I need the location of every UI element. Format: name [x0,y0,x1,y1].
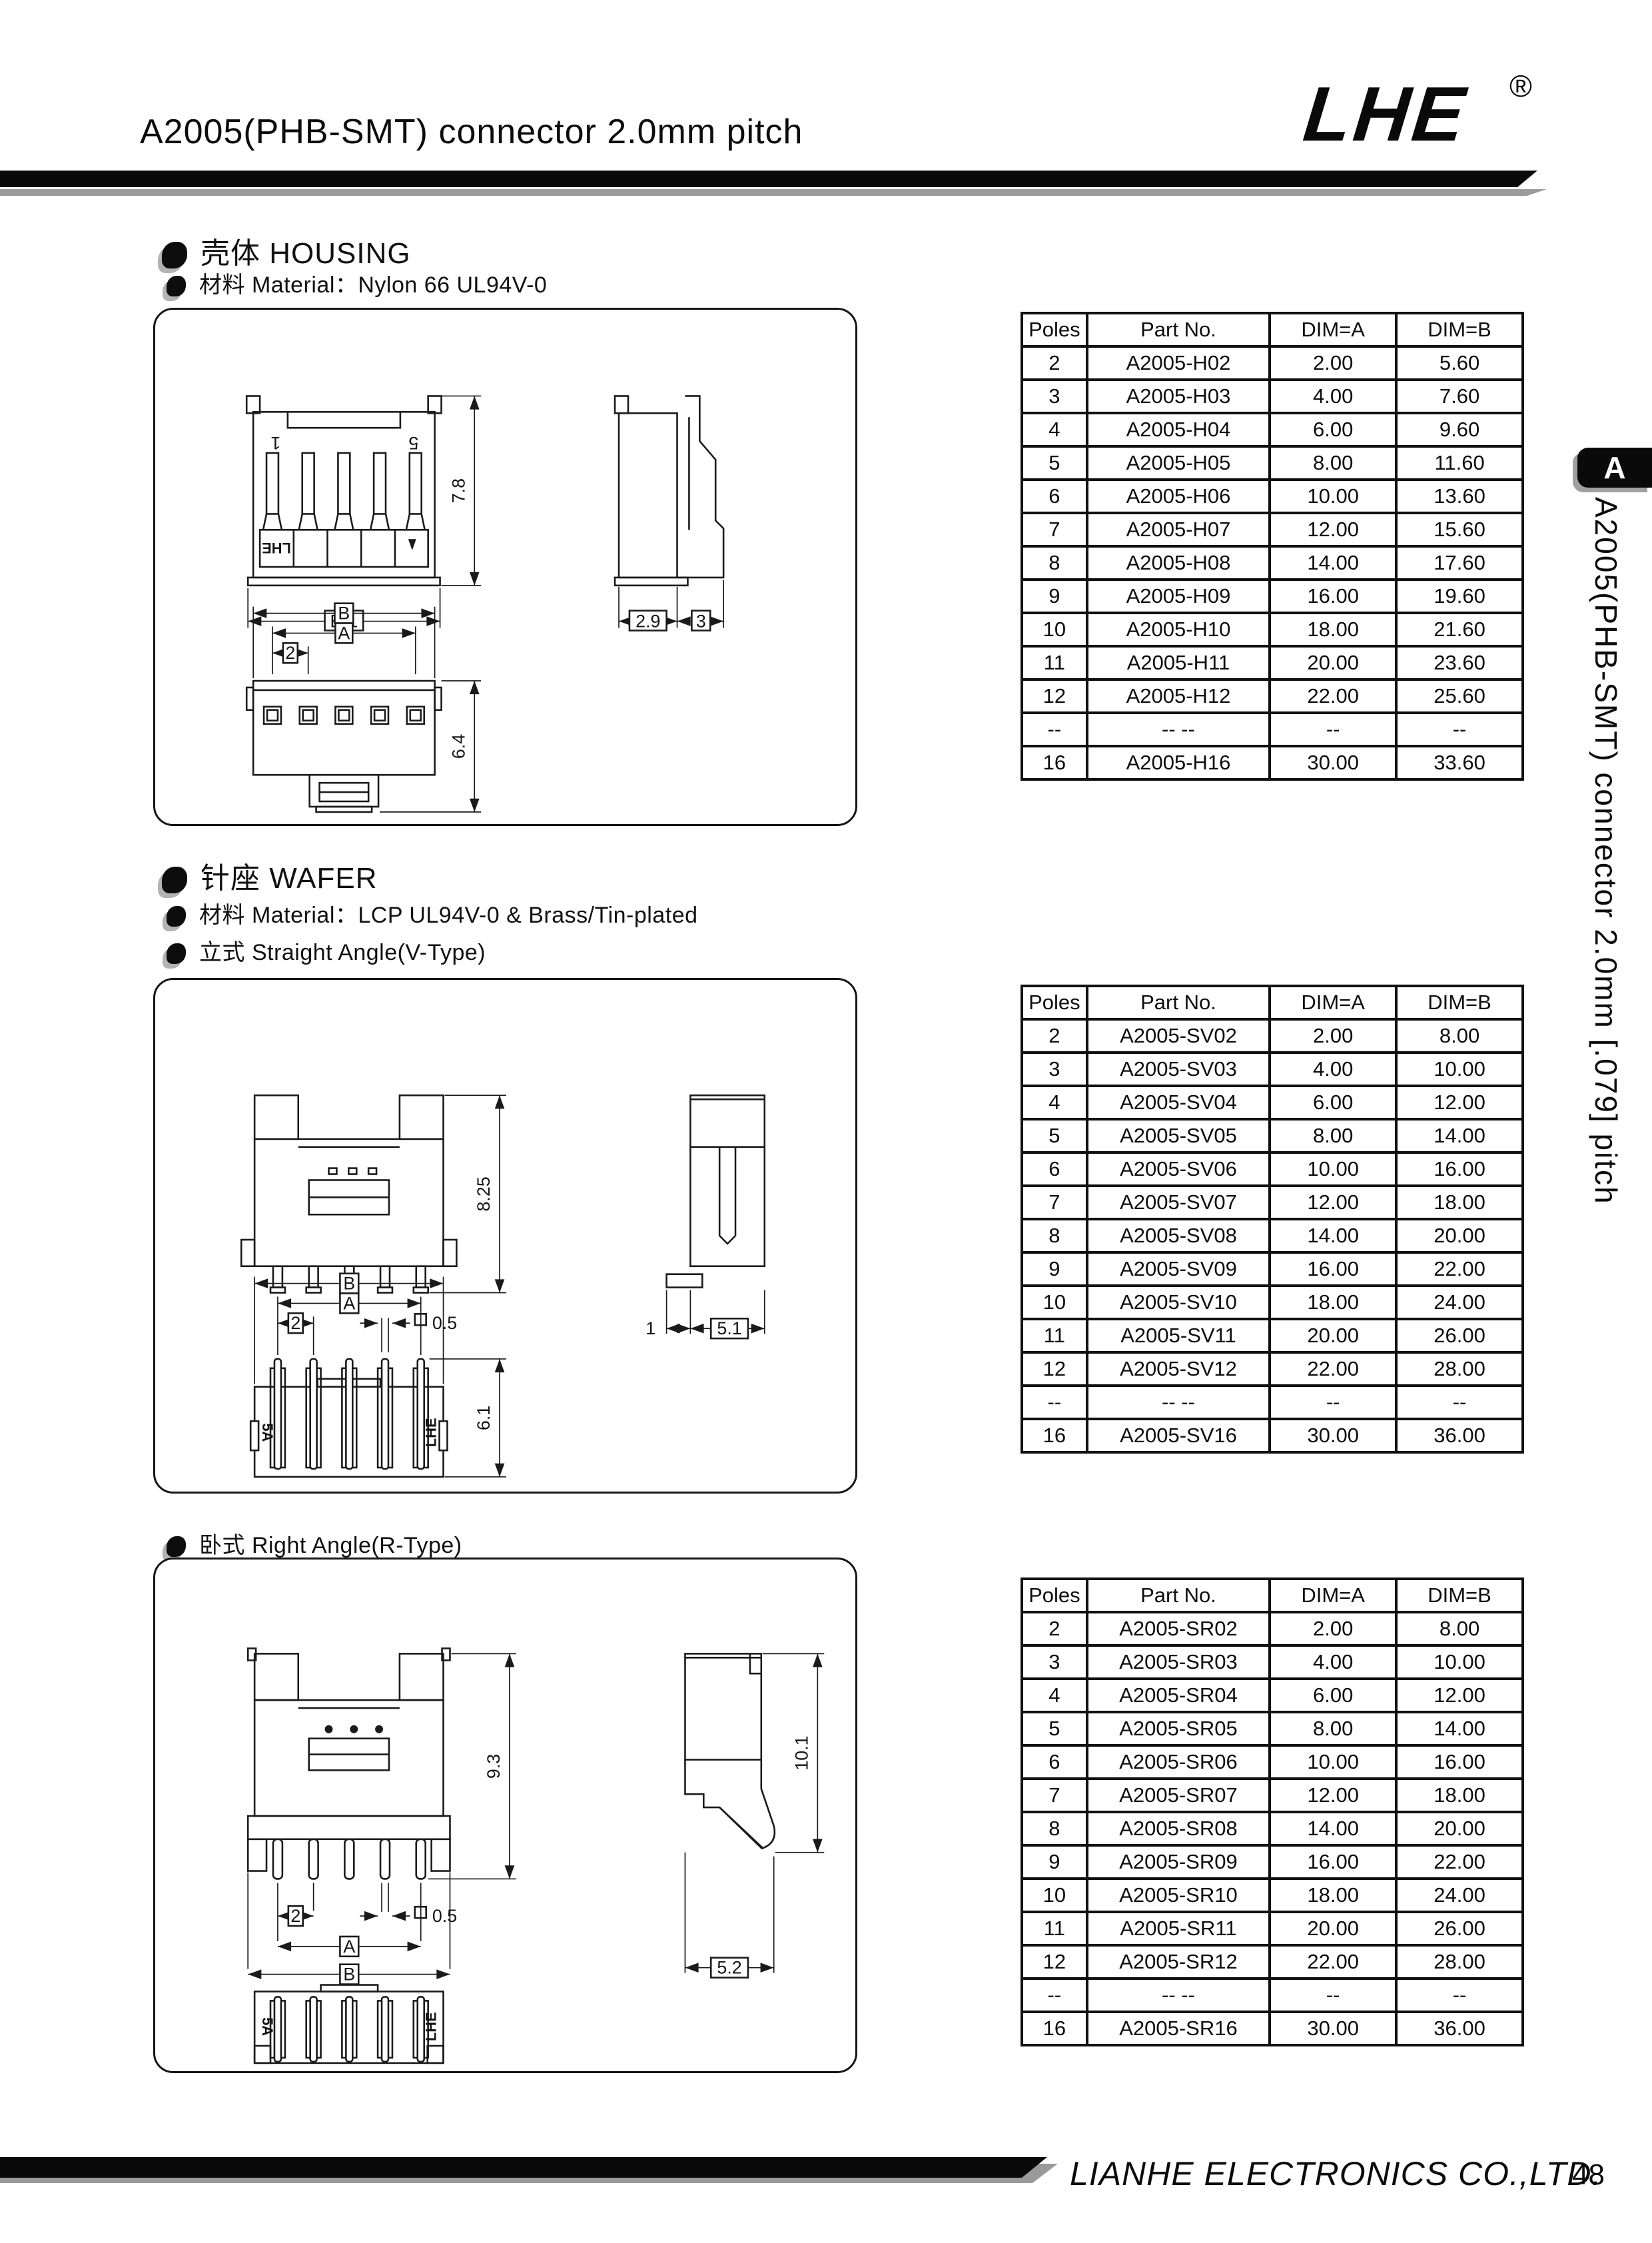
table-cell: -- [1270,713,1396,746]
table-cell: 22.00 [1396,1845,1523,1879]
table-row: 8A2005-H0814.0017.60 [1022,546,1523,580]
column-header: Poles [1022,313,1087,346]
table-cell: 30.00 [1270,2012,1396,2045]
footer-page-number: 48 [1572,2158,1605,2192]
wafer-right-angle-label: 卧式 Right Angle(R-Type) [199,1533,462,1558]
svg-text:LHE: LHE [423,1418,440,1447]
table-cell: 12.00 [1396,1086,1523,1119]
table-cell: 10 [1022,1879,1087,1912]
table-cell: 36.00 [1396,1419,1523,1452]
table-row: 5A2005-H058.0011.60 [1022,446,1523,480]
table-cell: A2005-H04 [1087,413,1270,446]
table-row: 8A2005-SV0814.0020.00 [1022,1219,1523,1252]
table-cell: -- -- [1087,1979,1270,2012]
table-cell: 10.00 [1396,1053,1523,1086]
table-cell: 12 [1022,679,1087,713]
table-cell: A2005-SR05 [1087,1712,1270,1745]
type-bullet-icon [167,943,186,964]
table-cell: 14.00 [1270,546,1396,580]
table-cell: 5 [1022,1119,1087,1152]
table-row: 3A2005-SR034.0010.00 [1022,1645,1523,1679]
table-cell: 33.60 [1396,746,1523,779]
table-cell: A2005-SV06 [1087,1152,1270,1186]
table-cell: 10.00 [1270,1152,1396,1186]
table-cell: A2005-SV04 [1087,1086,1270,1119]
table-cell: 7.60 [1396,380,1523,413]
table-cell: -- [1396,1979,1523,2012]
table-cell: -- [1396,713,1523,746]
table-cell: 2.00 [1270,346,1396,380]
wafer-r-front-view [248,1648,450,1879]
svg-text:B: B [343,1274,355,1294]
table-cell: 6.00 [1270,1086,1396,1119]
table-cell: A2005-H11 [1087,646,1270,679]
column-header: DIM=A [1270,1579,1396,1612]
table-cell: -- [1022,713,1087,746]
table-cell: A2005-SV08 [1087,1219,1270,1252]
table-cell: A2005-SR03 [1087,1645,1270,1679]
table-cell: 8 [1022,1812,1087,1845]
table-cell: 10.00 [1270,480,1396,513]
table-cell: 14.00 [1270,1219,1396,1252]
table-cell: A2005-SR10 [1087,1879,1270,1912]
table-cell: A2005-SV03 [1087,1053,1270,1086]
table-cell: 5 [1022,446,1087,480]
svg-text:B: B [338,604,350,624]
table-row: 5A2005-SR058.0014.00 [1022,1712,1523,1745]
svg-text:2.9: 2.9 [635,611,660,631]
table-cell: 25.60 [1396,679,1523,713]
table-cell: A2005-H05 [1087,446,1270,480]
table-cell: 16.00 [1396,1152,1523,1186]
column-header: Part No. [1087,986,1270,1019]
table-cell: 20.00 [1270,1912,1396,1945]
table-cell: A2005-H03 [1087,380,1270,413]
table-cell: A2005-H16 [1087,746,1270,779]
table-cell: 11.60 [1396,446,1523,480]
svg-text:5A: 5A [259,2017,276,2036]
table-cell: 10.00 [1396,1645,1523,1679]
table-cell: 3 [1022,1645,1087,1679]
table-cell: A2005-SV12 [1087,1352,1270,1386]
table-cell: 22.00 [1270,679,1396,713]
table-row: 11A2005-H1120.0023.60 [1022,646,1523,679]
wafer-v-spec-table: PolesPart No.DIM=ADIM=B2A2005-SV022.008.… [1021,985,1524,1454]
table-cell: 11 [1022,646,1087,679]
svg-text:LHE: LHE [262,540,291,556]
table-cell: A2005-H07 [1087,513,1270,546]
table-cell: 8 [1022,546,1087,580]
table-cell: 28.00 [1396,1945,1523,1979]
table-cell: A2005-SR04 [1087,1679,1270,1712]
table-cell: 9 [1022,1252,1087,1286]
table-row: 3A2005-SV034.0010.00 [1022,1053,1523,1086]
table-cell: A2005-SR08 [1087,1812,1270,1845]
table-cell: 10 [1022,613,1087,646]
table-cell: 6.00 [1270,1679,1396,1712]
column-header: DIM=A [1270,986,1396,1019]
table-cell: -- [1270,1386,1396,1419]
section-bullet-icon [162,242,187,268]
table-cell: 7 [1022,513,1087,546]
svg-text:6.4: 6.4 [448,734,468,759]
svg-text:A: A [343,1937,355,1957]
wafer-v-dimensions: 8.25 1 5.1 B A [254,1095,765,1477]
table-cell: 18.00 [1270,1879,1396,1912]
table-cell: A2005-SV02 [1087,1019,1270,1053]
table-cell: 13.60 [1396,480,1523,513]
table-cell: A2005-SR09 [1087,1845,1270,1879]
table-header-row: PolesPart No.DIM=ADIM=B [1022,986,1523,1019]
table-row: 6A2005-SV0610.0016.00 [1022,1152,1523,1186]
table-cell: 11 [1022,1319,1087,1352]
table-row: 8A2005-SR0814.0020.00 [1022,1812,1523,1845]
table-header-row: PolesPart No.DIM=ADIM=B [1022,313,1523,346]
table-row: 9A2005-SR0916.0022.00 [1022,1845,1523,1879]
section-index-label: A [1603,450,1625,486]
table-cell: 8 [1022,1219,1087,1252]
table-cell: -- [1022,1979,1087,2012]
table-row: 7A2005-H0712.0015.60 [1022,513,1523,546]
wafer-material-line: 材料 Material：LCP UL94V-0 & Brass/Tin-plat… [167,897,698,929]
table-cell: 2 [1022,346,1087,380]
table-cell: 12.00 [1270,513,1396,546]
table-cell: 7 [1022,1779,1087,1812]
table-cell: 4 [1022,413,1087,446]
housing-technical-drawing: 1 5 LHE [155,310,855,824]
wafer-r-drawing-box: 5A LHE 9.3 2 0.5 [153,1558,857,2073]
table-cell: 11 [1022,1912,1087,1945]
table-cell: -- [1396,1386,1523,1419]
table-row: 16A2005-H1630.0033.60 [1022,746,1523,779]
table-row: 9A2005-SV0916.0022.00 [1022,1252,1523,1286]
table-cell: 30.00 [1270,746,1396,779]
table-row: ---- ------ [1022,1386,1523,1419]
table-cell: A2005-SV16 [1087,1419,1270,1452]
table-cell: -- [1022,1386,1087,1419]
table-row: 5A2005-SV058.0014.00 [1022,1119,1523,1152]
table-cell: 24.00 [1396,1879,1523,1912]
table-cell: 6 [1022,1745,1087,1779]
table-cell: A2005-H06 [1087,480,1270,513]
table-cell: 8.00 [1270,1119,1396,1152]
svg-text:7.8: 7.8 [448,478,468,503]
table-cell: 2.00 [1270,1612,1396,1645]
table-cell: -- -- [1087,1386,1270,1419]
table-cell: A2005-H08 [1087,546,1270,580]
wafer-right-angle-line: 卧式 Right Angle(R-Type) [167,1527,462,1560]
table-cell: 12 [1022,1352,1087,1386]
material-bullet-icon [167,276,186,296]
table-cell: 16.00 [1396,1745,1523,1779]
table-cell: 16.00 [1270,580,1396,613]
housing-dimensions: 7.8 B-1 2.9 3 B [248,396,723,811]
table-cell: A2005-SR11 [1087,1912,1270,1945]
table-cell: 12 [1022,1945,1087,1979]
housing-bottom-view [246,681,441,812]
table-cell: 19.60 [1396,580,1523,613]
table-cell: A2005-H12 [1087,679,1270,713]
table-cell: 12.00 [1270,1779,1396,1812]
table-row: 4A2005-SV046.0012.00 [1022,1086,1523,1119]
table-cell: 4.00 [1270,1645,1396,1679]
table-cell: 26.00 [1396,1912,1523,1945]
table-row: ---- ------ [1022,1979,1523,2012]
table-cell: 6.00 [1270,413,1396,446]
table-cell: 18.00 [1396,1186,1523,1219]
column-header: Poles [1022,986,1087,1019]
table-cell: 8.00 [1270,1712,1396,1745]
table-cell: 16 [1022,2012,1087,2045]
wafer-heading-label: 针座 WAFER [201,862,377,895]
table-cell: 36.00 [1396,2012,1523,2045]
table-cell: 14.00 [1396,1119,1523,1152]
table-cell: 20.00 [1270,1319,1396,1352]
svg-text:2: 2 [290,1313,300,1333]
table-cell: 18.00 [1270,613,1396,646]
table-cell: 16 [1022,1419,1087,1452]
table-cell: 6 [1022,480,1087,513]
table-cell: 2 [1022,1612,1087,1645]
table-cell: A2005-SR02 [1087,1612,1270,1645]
table-row: ---- ------ [1022,713,1523,746]
material-bullet-icon [167,906,186,927]
table-cell: 14.00 [1396,1712,1523,1745]
table-row: 2A2005-H022.005.60 [1022,346,1523,380]
header-rule-shadow [0,189,1547,196]
table-cell: A2005-SR16 [1087,2012,1270,2045]
svg-text:5.2: 5.2 [717,1958,741,1978]
housing-heading-label: 壳体 HOUSING [201,237,411,270]
table-cell: 22.00 [1270,1945,1396,1979]
housing-material-label: 材料 Material：Nylon 66 UL94V-0 [199,272,547,298]
housing-side-view [615,396,723,585]
wafer-straight-label: 立式 Straight Angle(V-Type) [199,940,486,965]
table-cell: 6 [1022,1152,1087,1186]
table-row: 7A2005-SR0712.0018.00 [1022,1779,1523,1812]
table-cell: A2005-SV05 [1087,1119,1270,1152]
table-row: 10A2005-SV1018.0024.00 [1022,1286,1523,1319]
wafer-r-dimensions: 9.3 2 0.5 A B [248,1653,824,1984]
svg-text:1: 1 [271,433,281,453]
table-row: 11A2005-SR1120.0026.00 [1022,1912,1523,1945]
table-cell: 16.00 [1270,1845,1396,1879]
table-row: 3A2005-H034.007.60 [1022,380,1523,413]
page-title: A2005(PHB-SMT) connector 2.0mm pitch [140,112,803,152]
table-cell: 18.00 [1396,1779,1523,1812]
header-rule-bar [0,171,1537,187]
wafer-r-spec-table: PolesPart No.DIM=ADIM=B2A2005-SR022.008.… [1021,1577,1524,2046]
svg-text:5A: 5A [259,1423,276,1442]
table-row: 6A2005-H0610.0013.60 [1022,480,1523,513]
svg-text:2: 2 [285,643,295,663]
table-cell: A2005-SV11 [1087,1319,1270,1352]
table-cell: 9 [1022,580,1087,613]
table-cell: A2005-SV09 [1087,1252,1270,1286]
table-row: 9A2005-H0916.0019.60 [1022,580,1523,613]
column-header: Part No. [1087,1579,1270,1612]
wafer-r-technical-drawing: 5A LHE 9.3 2 0.5 [155,1560,855,2071]
table-cell: 5.60 [1396,346,1523,380]
wafer-material-label: 材料 Material：LCP UL94V-0 & Brass/Tin-plat… [199,903,698,928]
column-header: DIM=B [1396,1579,1523,1612]
table-row: 6A2005-SR0610.0016.00 [1022,1745,1523,1779]
table-cell: 8.00 [1396,1612,1523,1645]
svg-text:LHE: LHE [423,2012,440,2041]
table-cell: 2 [1022,1019,1087,1053]
table-cell: 9.60 [1396,413,1523,446]
wafer-section: 针座 WAFER [162,854,377,897]
table-row: 10A2005-H1018.0021.60 [1022,613,1523,646]
table-cell: 4.00 [1270,1053,1396,1086]
table-cell: 9 [1022,1845,1087,1879]
housing-front-view: 1 5 LHE [246,396,441,585]
table-cell: 8.00 [1270,446,1396,480]
housing-section: 壳体 HOUSING [162,229,411,272]
datasheet-page: A2005(PHB-SMT) connector 2.0mm pitch LHE… [0,0,1652,2243]
table-row: 12A2005-SV1222.0028.00 [1022,1352,1523,1386]
wafer-v-drawing-box: 5A LHE 8.25 1 5.1 B [153,978,857,1494]
table-cell: 30.00 [1270,1419,1396,1452]
table-row: 16A2005-SV1630.0036.00 [1022,1419,1523,1452]
section-index-tab: A [1577,448,1652,488]
table-cell: 28.00 [1396,1352,1523,1386]
svg-text:5: 5 [408,433,418,453]
registered-trademark-icon: ® [1509,68,1532,104]
table-cell: 3 [1022,380,1087,413]
table-row: 12A2005-H1222.0025.60 [1022,679,1523,713]
table-cell: A2005-H02 [1087,346,1270,380]
table-cell: 16 [1022,746,1087,779]
column-header: DIM=B [1396,313,1523,346]
wafer-v-front-view [241,1095,456,1292]
housing-spec-table: PolesPart No.DIM=ADIM=B2A2005-H022.005.6… [1021,312,1524,781]
company-logo: LHE [1300,69,1471,159]
table-cell: 12.00 [1396,1679,1523,1712]
table-cell: 18.00 [1270,1286,1396,1319]
svg-text:0.5: 0.5 [432,1313,457,1333]
svg-text:5.1: 5.1 [717,1318,741,1338]
table-cell: 15.60 [1396,513,1523,546]
table-cell: 21.60 [1396,613,1523,646]
svg-text:6.1: 6.1 [474,1406,494,1430]
table-cell: A2005-SR06 [1087,1745,1270,1779]
column-header: Part No. [1087,313,1270,346]
table-cell: 3 [1022,1053,1087,1086]
wafer-r-bottom-view: 5A LHE [254,1985,443,2063]
table-cell: 23.60 [1396,646,1523,679]
table-row: 2A2005-SV022.008.00 [1022,1019,1523,1053]
table-cell: 4 [1022,1679,1087,1712]
table-cell: A2005-SV10 [1087,1286,1270,1319]
table-cell: 22.00 [1396,1252,1523,1286]
wafer-v-side-view [667,1095,765,1287]
svg-text:9.3: 9.3 [484,1754,504,1779]
table-row: 7A2005-SV0712.0018.00 [1022,1186,1523,1219]
table-row: 4A2005-SR046.0012.00 [1022,1679,1523,1712]
table-row: 11A2005-SV1120.0026.00 [1022,1319,1523,1352]
table-cell: 10 [1022,1286,1087,1319]
svg-text:10.1: 10.1 [791,1735,811,1770]
column-header: DIM=A [1270,313,1396,346]
svg-text:B: B [343,1965,355,1985]
table-cell: 20.00 [1270,646,1396,679]
table-cell: 4.00 [1270,380,1396,413]
table-cell: 5 [1022,1712,1087,1745]
section-bullet-icon [162,867,187,893]
table-header-row: PolesPart No.DIM=ADIM=B [1022,1579,1523,1612]
table-cell: 20.00 [1396,1219,1523,1252]
column-header: Poles [1022,1579,1087,1612]
table-cell: -- [1270,1979,1396,2012]
svg-text:3: 3 [696,611,706,631]
wafer-v-technical-drawing: 5A LHE 8.25 1 5.1 B [155,980,855,1492]
table-cell: 26.00 [1396,1319,1523,1352]
table-row: 4A2005-H046.009.60 [1022,413,1523,446]
svg-text:8.25: 8.25 [474,1176,494,1211]
table-cell: 7 [1022,1186,1087,1219]
table-cell: 12.00 [1270,1186,1396,1219]
table-cell: 16.00 [1270,1252,1396,1286]
table-row: 10A2005-SR1018.0024.00 [1022,1879,1523,1912]
type-bullet-icon [167,1536,186,1557]
table-row: 16A2005-SR1630.0036.00 [1022,2012,1523,2045]
wafer-straight-line: 立式 Straight Angle(V-Type) [167,934,486,967]
sidebar-vertical-title: A2005(PHB-SMT) connector 2.0mm [.079] pi… [1588,497,1624,1443]
svg-text:A: A [338,623,350,643]
table-row: 2A2005-SR022.008.00 [1022,1612,1523,1645]
table-cell: A2005-SR07 [1087,1779,1270,1812]
table-cell: 20.00 [1396,1812,1523,1845]
table-cell: 24.00 [1396,1286,1523,1319]
table-cell: A2005-SV07 [1087,1186,1270,1219]
table-cell: 14.00 [1270,1812,1396,1845]
wafer-r-side-view [685,1653,774,1848]
table-cell: 22.00 [1270,1352,1396,1386]
footer-rule-bar [0,2157,1047,2178]
footer-company-name: LIANHE ELECTRONICS CO.,LTD. [1070,2154,1601,2193]
table-cell: 4 [1022,1086,1087,1119]
table-cell: A2005-H09 [1087,580,1270,613]
table-cell: 8.00 [1396,1019,1523,1053]
table-row: 12A2005-SR1222.0028.00 [1022,1945,1523,1979]
table-cell: 10.00 [1270,1745,1396,1779]
housing-material-line: 材料 Material：Nylon 66 UL94V-0 [167,266,547,299]
svg-text:2: 2 [290,1906,300,1926]
svg-text:A: A [343,1293,355,1313]
table-cell: -- -- [1087,713,1270,746]
table-cell: 2.00 [1270,1019,1396,1053]
table-cell: 17.60 [1396,546,1523,580]
svg-text:1: 1 [645,1318,655,1338]
svg-text:0.5: 0.5 [432,1906,457,1926]
table-cell: A2005-SR12 [1087,1945,1270,1979]
housing-drawing-box: 1 5 LHE [153,308,857,826]
column-header: DIM=B [1396,986,1523,1019]
table-cell: A2005-H10 [1087,613,1270,646]
wafer-v-bottom-view: 5A LHE [250,1359,447,1477]
